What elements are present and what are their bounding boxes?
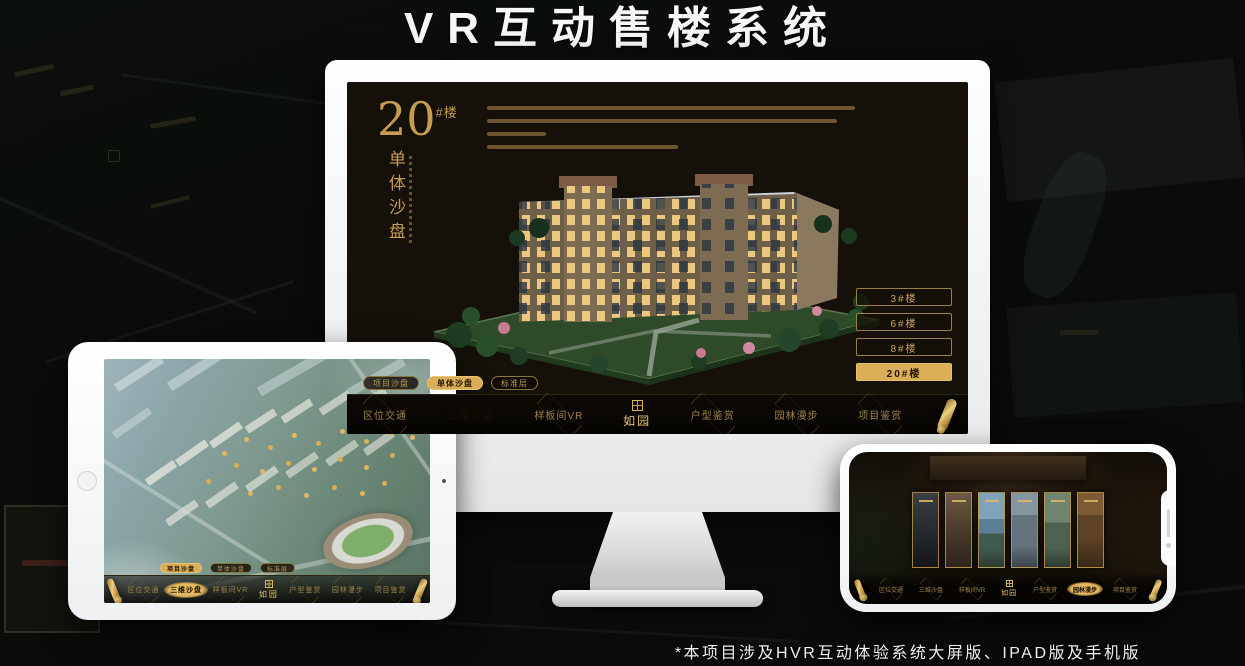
- floor-button-6[interactable]: 6#楼: [856, 313, 952, 331]
- floor-button-3[interactable]: 3#楼: [856, 288, 952, 306]
- seal-icon: [265, 580, 273, 588]
- nav-item-location[interactable]: 区位交通: [363, 407, 407, 422]
- nav-item-garden-walk[interactable]: 园林漫步: [775, 407, 819, 422]
- phone-navbar: 区位交通 三维沙盘 样板间VR 如园 户型鉴赏 园林漫步 项目鉴赏: [849, 574, 1167, 604]
- ipad-navbar: 区位交通 三维沙盘 样板间VR 如园 户型鉴赏 园林漫步 项目鉴赏: [104, 575, 430, 603]
- home-button[interactable]: [77, 471, 97, 491]
- nav-item-3d-sandbox[interactable]: 三维沙盘: [170, 585, 202, 595]
- gallery-panel-1[interactable]: [912, 492, 939, 568]
- speaker-icon: [1167, 509, 1170, 537]
- brand-logo: 如园: [1001, 580, 1017, 598]
- poster-canvas: VR互动售楼系统 20#楼 单体沙盘: [0, 0, 1245, 666]
- scroll-menu-icon-right[interactable]: [413, 577, 428, 602]
- nav-item-model-room-vr[interactable]: 样板间VR: [959, 585, 985, 594]
- gallery-panel-4[interactable]: [1011, 492, 1038, 568]
- ipad-sub-tabs: 项目沙盘 单体沙盘 标准层: [160, 563, 295, 573]
- gallery-panel-5[interactable]: [1044, 492, 1071, 568]
- tab-single-sandbox[interactable]: 单体沙盘: [427, 376, 483, 390]
- camera-icon: [1166, 543, 1171, 548]
- nav-item-floorplans[interactable]: 户型鉴赏: [691, 407, 735, 422]
- gallery-panel-3[interactable]: [978, 492, 1005, 568]
- nav-item-garden-walk[interactable]: 园林漫步: [332, 585, 364, 595]
- gallery-panel-6[interactable]: [1077, 492, 1104, 568]
- seal-icon: [1006, 580, 1013, 587]
- tab-standard-floor[interactable]: 标准层: [260, 563, 295, 573]
- nav-item-location[interactable]: 区位交通: [879, 585, 903, 594]
- scroll-menu-icon-left[interactable]: [853, 579, 866, 600]
- nav-item-project-gallery[interactable]: 项目鉴赏: [374, 585, 406, 595]
- nav-item-project-gallery[interactable]: 项目鉴赏: [858, 407, 902, 422]
- building-number-markers: [222, 451, 227, 456]
- phone-device: 区位交通 三维沙盘 样板间VR 如园 户型鉴赏 园林漫步 项目鉴赏: [840, 444, 1176, 612]
- nav-item-model-room-vr[interactable]: 样板间VR: [534, 407, 583, 422]
- page-title: VR互动售楼系统: [0, 0, 1245, 58]
- brand-logo-text: 如园: [1001, 588, 1017, 598]
- phone-screen: 区位交通 三维沙盘 样板间VR 如园 户型鉴赏 园林漫步 项目鉴赏: [849, 452, 1167, 604]
- brand-logo-text: 如园: [259, 589, 279, 600]
- monitor-navbar: 区位交通 三维沙盘 样板间VR 如园 户型鉴赏 园林漫步 项目鉴赏: [347, 394, 968, 434]
- monitor-sub-tabs: 项目沙盘 单体沙盘 标准层: [363, 376, 538, 390]
- gallery-panel-2[interactable]: [945, 492, 972, 568]
- tab-project-sandbox[interactable]: 项目沙盘: [363, 376, 419, 390]
- scroll-menu-icon-left[interactable]: [106, 577, 121, 602]
- building-3d-render: [399, 132, 909, 390]
- tab-project-sandbox[interactable]: 项目沙盘: [160, 563, 202, 573]
- brand-logo-text: 如园: [623, 412, 651, 429]
- nav-item-floorplans[interactable]: 户型鉴赏: [1033, 585, 1057, 594]
- vr-gallery-panels: [912, 492, 1104, 568]
- brand-logo: 如园: [259, 580, 279, 600]
- building-number-suffix: #楼: [436, 105, 458, 120]
- monitor-stand: [590, 512, 725, 594]
- brand-logo: 如园: [623, 400, 651, 429]
- camera-icon: [442, 479, 446, 483]
- nav-item-floorplans[interactable]: 户型鉴赏: [289, 585, 321, 595]
- scroll-menu-icon[interactable]: [936, 397, 958, 432]
- nav-item-location[interactable]: 区位交通: [128, 585, 160, 595]
- monitor-screen: 20#楼 单体沙盘: [347, 82, 968, 434]
- tab-single-sandbox[interactable]: 单体沙盘: [210, 563, 252, 573]
- footnote: *本项目涉及HVR互动体验系统大屏版、IPAD版及手机版: [675, 639, 1141, 663]
- floor-button-20[interactable]: 20#楼: [856, 363, 952, 381]
- monitor-base: [552, 590, 763, 607]
- floor-button-group: 3#楼 6#楼 8#楼 20#楼: [856, 288, 952, 381]
- nav-item-3d-sandbox[interactable]: 三维沙盘: [919, 585, 943, 594]
- phone-notch: [1161, 490, 1176, 566]
- nav-item-project-gallery[interactable]: 项目鉴赏: [1113, 585, 1137, 594]
- nav-item-model-room-vr[interactable]: 样板间VR: [213, 585, 249, 595]
- seal-icon: [632, 400, 643, 411]
- nav-item-garden-walk[interactable]: 园林漫步: [1073, 585, 1097, 594]
- floor-button-8[interactable]: 8#楼: [856, 338, 952, 356]
- tab-standard-floor[interactable]: 标准层: [491, 376, 538, 390]
- nav-item-3d-sandbox[interactable]: 三维沙盘: [447, 407, 495, 423]
- ceiling-beam: [930, 456, 1086, 480]
- scroll-menu-icon-right[interactable]: [1149, 579, 1162, 600]
- stadium: [317, 503, 420, 578]
